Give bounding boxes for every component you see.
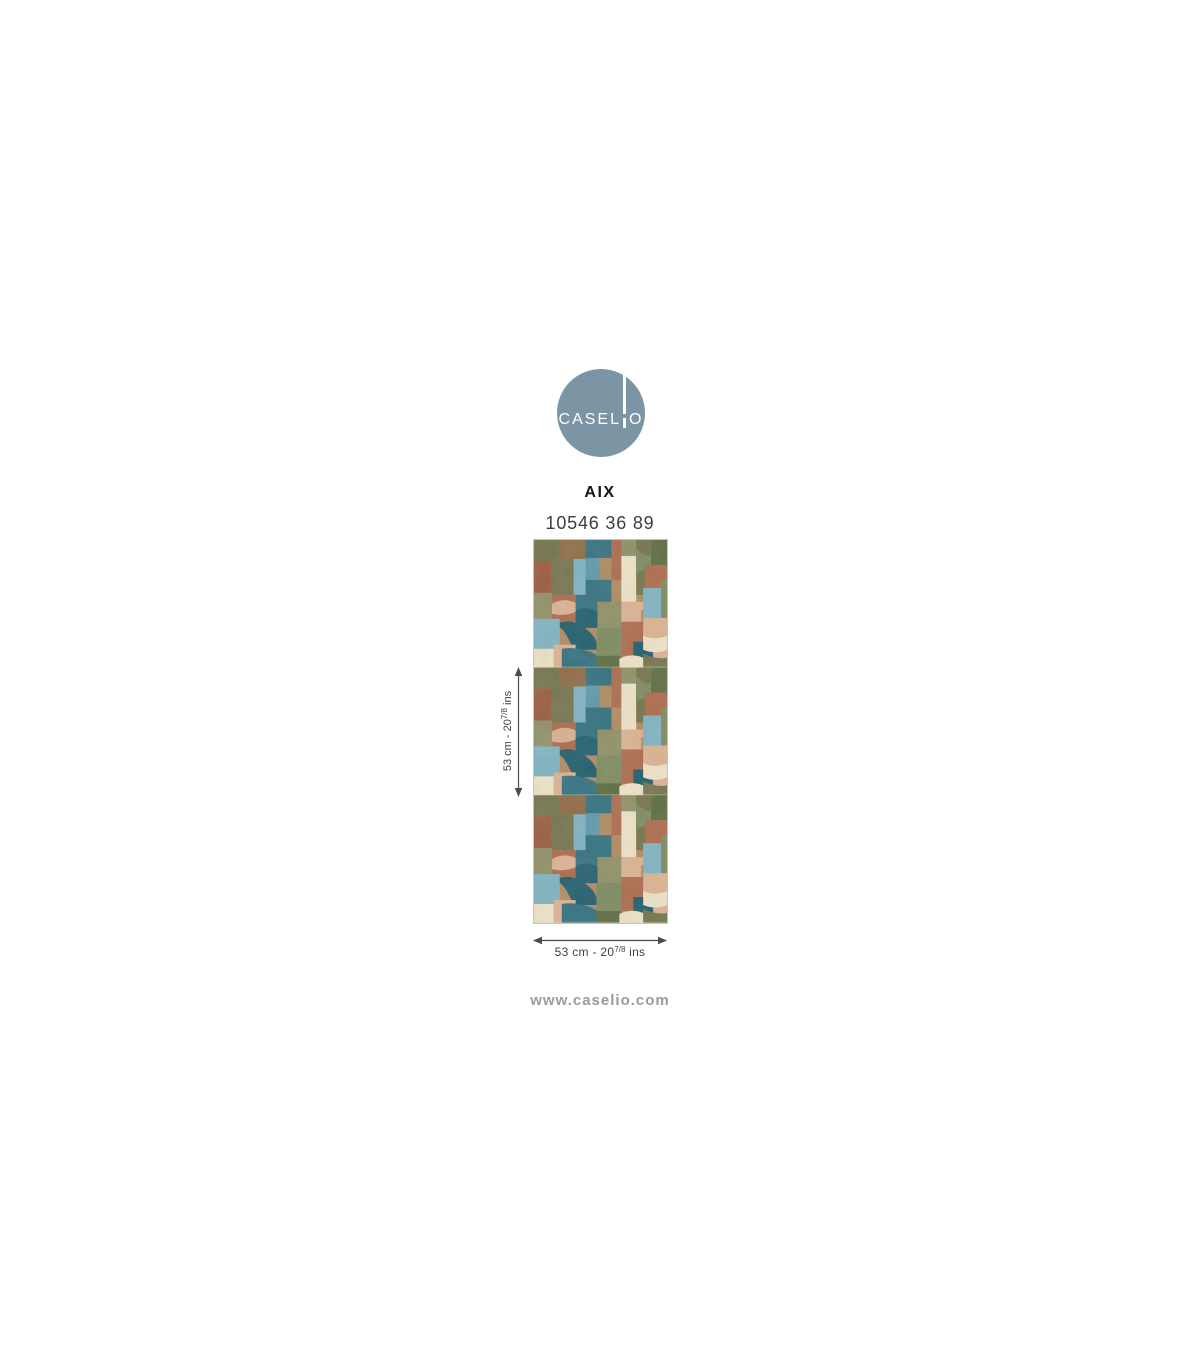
brand-logo: CASEL O: [557, 369, 645, 457]
product-name: AIX: [0, 484, 1200, 502]
pattern-grain-overlay: [534, 540, 667, 923]
vertical-dimension-text: 53 cm - 20: [502, 719, 514, 771]
vertical-dimension-label: 53 cm - 207/8 ins: [497, 671, 513, 791]
wallpaper-pattern-svg: [534, 540, 667, 923]
horizontal-dimension-text: 53 cm - 20: [555, 945, 615, 959]
website-url: www.caselio.com: [0, 992, 1200, 1009]
brand-wordmark: CASEL O: [557, 412, 645, 428]
horizontal-dimension-fraction: 7/8: [614, 945, 625, 954]
wallpaper-swatch: [534, 540, 667, 923]
vertical-dimension-unit: ins: [502, 691, 514, 708]
horizontal-dimension-label: 53 cm - 207/8 ins: [0, 945, 1200, 959]
logo-i-stem: [623, 368, 626, 414]
brand-wordmark-left: CASEL: [559, 412, 621, 428]
logo-i-letter: [623, 418, 626, 428]
product-reference: 10546 36 89: [0, 513, 1200, 534]
vertical-dimension-fraction: 7/8: [500, 708, 509, 719]
product-sheet: CASEL O AIX 10546 36 89: [0, 0, 1200, 1372]
horizontal-dimension-unit: ins: [625, 945, 645, 959]
brand-wordmark-right: O: [629, 412, 643, 428]
